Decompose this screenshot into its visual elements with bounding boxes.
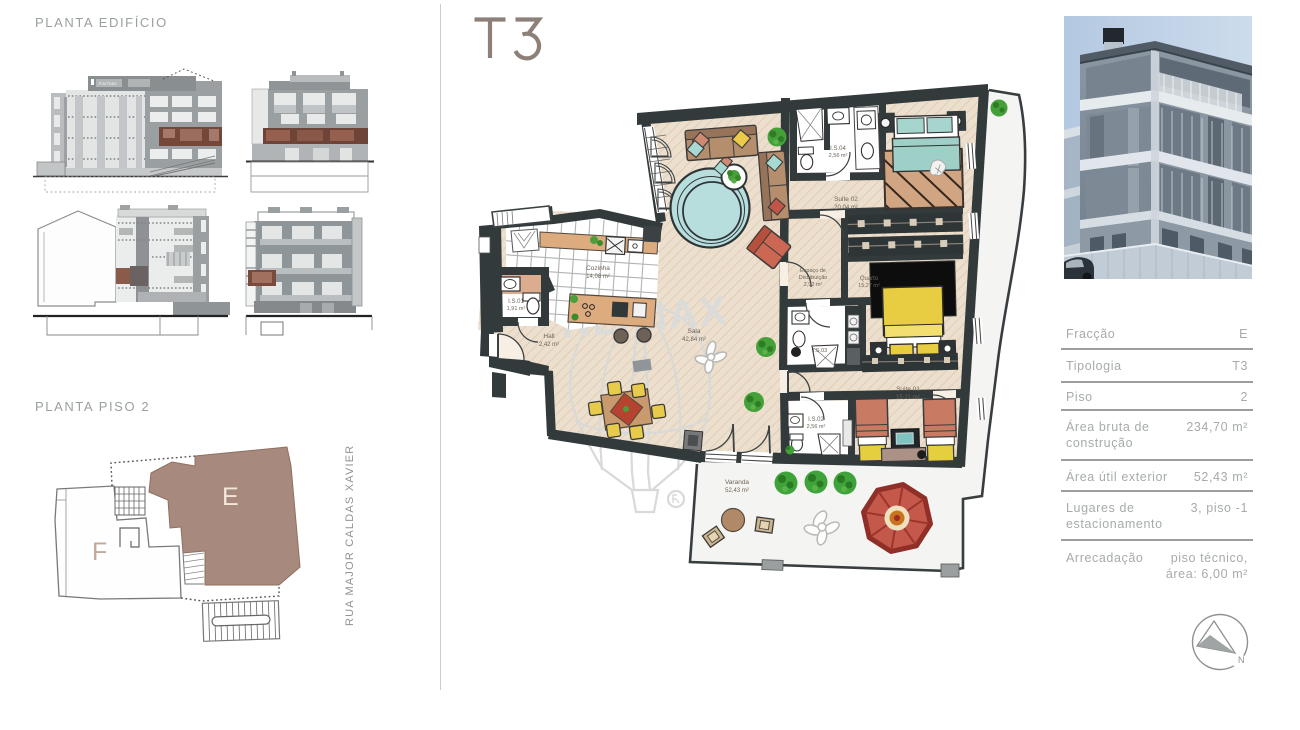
svg-text:20,04 m²: 20,04 m² (834, 205, 858, 211)
svg-text:14,08 m²: 14,08 m² (586, 274, 610, 280)
svg-text:Quarto: Quarto (860, 276, 879, 282)
svg-text:Farmac: Farmac (99, 81, 118, 86)
svg-text:Sala: Sala (687, 328, 700, 335)
svg-text:Suite 02: Suite 02 (834, 196, 858, 203)
svg-text:I.S.03: I.S.03 (813, 348, 827, 354)
svg-text:Suite 01: Suite 01 (896, 386, 920, 393)
svg-text:1,91 m²: 1,91 m² (507, 306, 526, 312)
svg-text:I.S.02: I.S.02 (808, 417, 824, 423)
svg-text:2,92 m²: 2,92 m² (804, 282, 823, 288)
svg-text:Hall: Hall (543, 333, 555, 340)
svg-text:Distribuição: Distribuição (799, 275, 828, 281)
svg-text:E: E (222, 483, 239, 511)
svg-text:Espaço de: Espaço de (800, 268, 826, 274)
svg-text:42,84 m²: 42,84 m² (682, 337, 706, 343)
svg-text:N: N (1238, 655, 1245, 665)
svg-text:I.S.04: I.S.04 (830, 146, 846, 152)
svg-text:15,27 m²: 15,27 m² (858, 283, 880, 289)
svg-text:I.S.01: I.S.01 (508, 299, 524, 305)
svg-text:15,21 m²: 15,21 m² (896, 395, 920, 401)
svg-text:2,42 m²: 2,42 m² (539, 342, 559, 348)
svg-text:Cozinha: Cozinha (586, 265, 610, 272)
svg-text:Varanda: Varanda (725, 479, 749, 486)
svg-text:F: F (92, 538, 107, 566)
svg-text:2,56 m²: 2,56 m² (829, 153, 848, 159)
svg-text:52,43 m²: 52,43 m² (725, 488, 749, 494)
svg-text:2,56 m²: 2,56 m² (807, 424, 826, 430)
